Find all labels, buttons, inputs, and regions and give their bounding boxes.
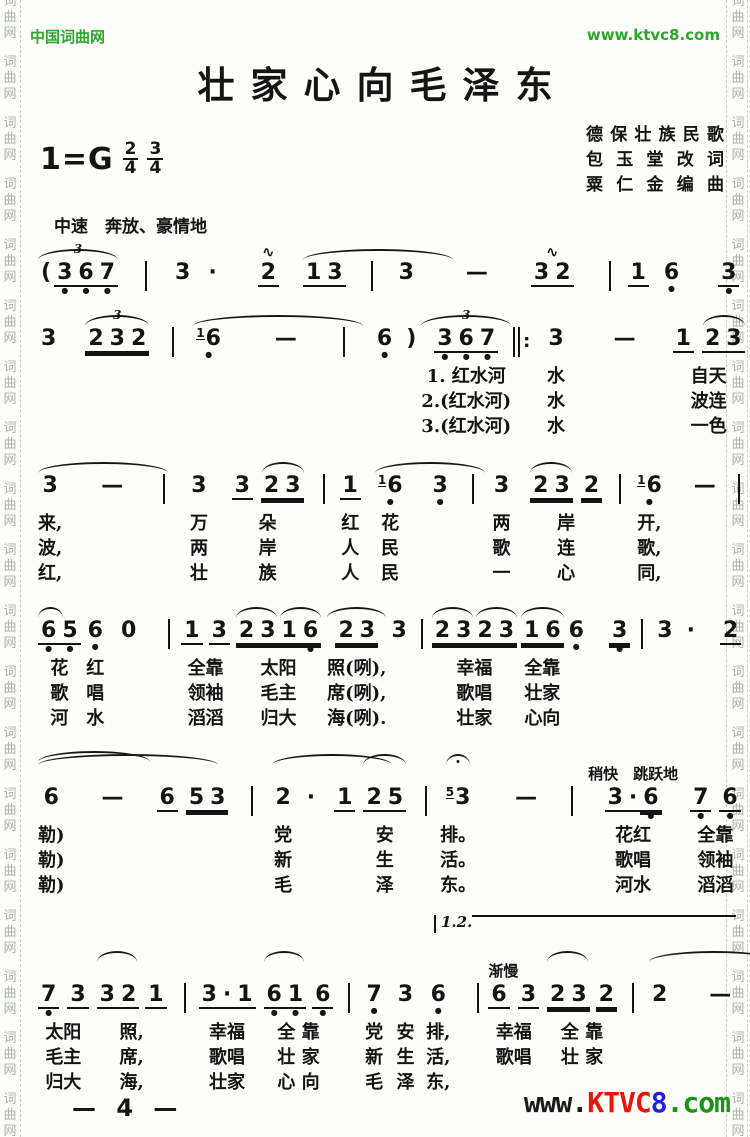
note-token: 1● <box>303 261 324 297</box>
note-token: —● <box>98 474 126 508</box>
empty-mark <box>181 945 189 963</box>
note-token: 1● <box>279 619 300 655</box>
lyric-syllable <box>616 707 622 732</box>
notes-row: 2●3●1●6● <box>236 619 321 657</box>
tempo-annotation <box>649 963 670 983</box>
volta-bracket: 1.2. <box>434 915 736 933</box>
notes-row <box>163 474 165 512</box>
score-column: 3● <box>38 309 59 440</box>
notes-row: 16● <box>193 327 224 365</box>
score-column: 1●6●全靠壮家心向 <box>521 601 564 732</box>
lyric-syllable <box>381 390 387 415</box>
note-token: 3● <box>605 786 626 822</box>
tuplet-number: 3 <box>113 308 121 322</box>
empty-mark <box>320 456 328 474</box>
lyric-syllable <box>470 512 476 537</box>
note-token: 3● <box>434 327 455 363</box>
lyric-syllable <box>736 562 742 587</box>
barline <box>251 786 253 816</box>
score-column: 3●万两壮 <box>188 456 209 587</box>
slur-arc <box>232 456 304 474</box>
empty-mark <box>99 748 127 766</box>
note-token: —● <box>611 327 639 361</box>
left-watermark-column: 词曲网词曲网词曲网词曲网词曲网词曲网词曲网词曲网词曲网词曲网词曲网词曲网词曲网词… <box>1 0 19 1137</box>
lyric-syllable: 党 <box>274 824 292 849</box>
note-token: 2● <box>261 474 282 510</box>
lyric-syllable <box>569 824 575 849</box>
empty-mark <box>568 748 576 766</box>
lyric-syllable: 波连 <box>691 390 727 415</box>
empty-mark <box>142 243 150 261</box>
watermark-char: 网 <box>1 1002 19 1018</box>
lyric-syllable <box>109 874 115 899</box>
notes-row: 2● <box>720 619 741 657</box>
lyric-syllable <box>639 707 645 732</box>
key-signature: 1=G 2434 <box>40 141 163 177</box>
lyric-syllable <box>109 562 115 587</box>
watermark-char: 曲 <box>1 742 19 758</box>
note-token: 2● <box>363 786 384 822</box>
note-token: ·● <box>684 619 698 653</box>
empty-mark <box>98 456 126 474</box>
lyric-syllable <box>346 1071 352 1096</box>
notes-row: 6●3● <box>488 983 539 1021</box>
empty-mark <box>638 601 646 619</box>
note-token: 3● <box>357 619 378 655</box>
note-token: —● <box>706 983 734 1017</box>
empty-mark <box>85 601 106 619</box>
score-column <box>469 456 477 587</box>
lyric-syllable: 席, <box>119 1046 143 1071</box>
slur-arc <box>38 601 81 619</box>
lyric-syllable: 壮家 <box>209 1071 245 1096</box>
notes-row: 2●3●2● <box>547 983 617 1021</box>
notes-row: —● <box>99 786 127 824</box>
barline <box>425 786 427 816</box>
lyric-syllable: 壮 家 <box>561 1046 603 1071</box>
tempo-annotation <box>97 963 167 983</box>
lyric-syllable <box>170 415 176 440</box>
notes-row: 3●·●1● <box>199 983 256 1021</box>
barline <box>343 327 345 357</box>
empty-mark <box>512 748 540 766</box>
lyric-syllable <box>423 824 429 849</box>
lyric-syllable <box>396 682 402 707</box>
lyric-syllable: 水 <box>86 707 104 732</box>
note-token: 3● <box>718 261 739 297</box>
note-token: 6● <box>542 619 563 655</box>
empty-mark <box>165 601 173 619</box>
lyric-syllable <box>46 415 52 440</box>
note-token: 6● <box>719 786 740 822</box>
notes-row: 6● <box>41 786 62 824</box>
lyric-syllable <box>166 657 172 682</box>
slur-arc <box>97 945 167 963</box>
tempo-annotation <box>690 766 741 786</box>
notes-row: 6● <box>85 619 106 657</box>
lyric-syllable <box>617 562 623 587</box>
score-column: ·● <box>205 243 219 299</box>
watermark-char: 网 <box>1 87 19 103</box>
score-column: ∿3●2● <box>531 243 574 299</box>
lyric-syllable: 新 <box>365 1046 383 1071</box>
note-token: ·● <box>205 261 219 295</box>
note-token: 3● <box>107 327 128 363</box>
barline <box>323 474 325 504</box>
barline <box>348 983 350 1013</box>
barline <box>477 983 479 1013</box>
mordent-ornament: ∿ <box>531 243 574 261</box>
logo-segment: 8 <box>651 1086 667 1119</box>
watermark-char: 网 <box>1 26 19 42</box>
lyric-syllable <box>342 849 348 874</box>
lyric-syllable: 2.(红水河) <box>421 390 511 415</box>
watermark-char: 词 <box>1 116 19 132</box>
note-token: 5● <box>186 786 207 822</box>
note-token: 3● <box>396 261 417 295</box>
empty-mark <box>272 309 300 327</box>
note-token: 7● <box>38 983 59 1019</box>
lyric-syllable <box>114 390 120 415</box>
empty-mark <box>430 456 451 474</box>
lyric-syllable <box>617 537 623 562</box>
empty-mark <box>491 456 512 474</box>
ktvc8-logo[interactable]: www.KTVC8.com <box>524 1086 730 1119</box>
lyric-syllable <box>662 707 668 732</box>
lyric-syllable: 活, <box>426 1046 450 1071</box>
note-token: 3● <box>568 983 589 1019</box>
score-column: 3●水水水 <box>545 309 566 440</box>
lyric-syllable <box>717 1046 723 1071</box>
time-signature: 34 <box>147 141 163 177</box>
notes-row: 6● <box>566 619 587 657</box>
lyric-syllable: 歌唱 <box>615 849 651 874</box>
composer-credits: 德保壮族民歌包玉堂改词粟仁金编曲 <box>586 123 724 198</box>
score-column: 2● <box>649 945 670 1096</box>
empty-mark <box>334 748 355 766</box>
barline <box>619 474 621 504</box>
watermark-char: 曲 <box>1 864 19 880</box>
lyric-syllable <box>475 1071 481 1096</box>
score-column: 3●·●1●幸福歌唱壮家 <box>199 945 256 1096</box>
tempo-annotation <box>181 963 189 983</box>
notes-row: 2●3●2● <box>530 474 602 512</box>
lyric-syllable: 水 <box>547 415 565 440</box>
note-token: 1● <box>334 786 355 822</box>
lyric-syllable <box>630 1046 636 1071</box>
note-token: 2● <box>702 327 723 363</box>
slur-arc <box>303 243 346 261</box>
notes-row: 6●5●3● <box>157 786 229 824</box>
lyric-syllable: 心 向 <box>277 1071 319 1096</box>
notes-row: 1●2●3● <box>673 327 745 365</box>
empty-mark <box>368 243 376 261</box>
note-token: 1● <box>521 619 542 655</box>
barline <box>371 261 373 291</box>
lyric-syllable <box>114 365 120 390</box>
note-token: (● <box>38 261 54 295</box>
score-column <box>169 309 177 440</box>
lyric-syllable <box>181 1046 187 1071</box>
note-token: 1● <box>285 983 306 1019</box>
lyric-syllable <box>109 849 115 874</box>
notes-row: 3●2●3● <box>232 474 304 512</box>
lyric-syllable <box>437 537 443 562</box>
score-column: :● <box>513 309 533 440</box>
score-column: 稍快 跳跃地3●·●6●花红歌唱河水 <box>588 748 678 899</box>
empty-mark <box>469 456 477 474</box>
notes-row: —● <box>98 474 126 512</box>
watermark-char: 网 <box>1 758 19 774</box>
notes-row <box>168 619 170 657</box>
watermark-char: 词 <box>729 55 747 71</box>
score-column <box>165 601 173 732</box>
tempo-annotation: 渐慢 <box>488 963 539 983</box>
slur-arcs <box>236 601 321 619</box>
lyric-syllable: 红 <box>86 657 104 682</box>
key-and-credits-row: 1=G 2434 德保壮族民歌包玉堂改词粟仁金编曲 <box>40 123 724 198</box>
note-token: 3● <box>38 327 59 361</box>
grace-note: 1 <box>378 475 386 487</box>
lyric-syllable: 滔滔 <box>188 707 224 732</box>
lyric-syllable <box>205 390 211 415</box>
lyric-syllable: 泽 <box>376 874 394 899</box>
empty-mark <box>691 456 719 474</box>
note-token: :● <box>520 327 533 361</box>
note-token: 6● <box>312 983 333 1019</box>
notes-row <box>609 261 611 299</box>
empty-mark <box>422 748 430 766</box>
score-column: 3● <box>172 243 193 299</box>
watermark-char: 词 <box>1 0 19 10</box>
note-token: 2● <box>596 983 617 1019</box>
notes-row: 3● <box>39 474 60 512</box>
tempo-annotation <box>272 766 293 786</box>
lyric-syllable <box>622 365 628 390</box>
note-token: 7● <box>363 983 384 1017</box>
site-name-link[interactable]: 中国词曲网 <box>30 26 105 47</box>
notes-row: 1● <box>628 261 649 299</box>
lyric-syllable <box>249 874 255 899</box>
notes-row <box>632 983 634 1021</box>
note-token: 6● <box>85 619 106 653</box>
note-token: 1● <box>145 983 166 1019</box>
notes-row: 2●3●2●3● <box>432 619 517 657</box>
score-column: 7●党新毛 <box>363 945 384 1096</box>
watermark-char: 曲 <box>1 193 19 209</box>
note-token: —● <box>691 474 719 508</box>
empty-mark <box>340 456 361 474</box>
lyric-syllable <box>727 657 733 682</box>
notes-row: (●3●6●7● <box>38 261 118 299</box>
lyric-syllable <box>573 657 579 682</box>
lyric-syllable: 全靠 <box>188 657 224 682</box>
score-column: 2●党新毛 <box>272 748 293 899</box>
empty-mark <box>38 309 59 327</box>
score-column: 6●勒)勒)勒) <box>38 748 65 899</box>
notes-row: 3● <box>718 261 739 299</box>
lyric-syllable <box>205 365 211 390</box>
watermark-char: 词 <box>1 1092 19 1108</box>
notes-row: 1●3● <box>303 261 346 299</box>
lyric-syllable: 东, <box>426 1071 450 1096</box>
empty-mark <box>304 748 318 766</box>
lyric-syllable <box>419 682 425 707</box>
tempo-annotation <box>38 963 89 983</box>
watermark-char: 曲 <box>1 1047 19 1063</box>
note-token: 7● <box>690 786 711 822</box>
lyric-syllable: 勒) <box>38 849 65 874</box>
sheet-music-page: 词曲网词曲网词曲网词曲网词曲网词曲网词曲网词曲网词曲网词曲网词曲网词曲网词曲网词… <box>0 0 750 1137</box>
notes-row: 2● <box>272 786 293 824</box>
lyric-syllable <box>688 707 694 732</box>
watermark-char: 曲 <box>1 132 19 148</box>
watermark-char: 网 <box>729 26 747 42</box>
note-token: 6● <box>264 983 285 1019</box>
lyric-syllable <box>346 1021 352 1046</box>
watermark-char: 曲 <box>1 559 19 575</box>
notes-row: ·● <box>205 261 219 299</box>
notes-row: 3● <box>491 474 512 512</box>
watermark-char: 网 <box>1 941 19 957</box>
empty-mark <box>160 456 168 474</box>
barline <box>738 474 740 504</box>
notes-row <box>145 261 147 299</box>
note-token: 3● <box>209 619 230 655</box>
lyric-syllable <box>437 562 443 587</box>
time-signatures: 2434 <box>114 141 164 177</box>
tempo-annotation <box>199 963 256 983</box>
lyric-syllable <box>283 415 289 440</box>
lyric-syllable: 席(咧), <box>327 682 386 707</box>
watermark-char: 曲 <box>1 315 19 331</box>
notes-row: 3● <box>396 261 417 299</box>
lyric-syllable <box>161 562 167 587</box>
note-token: 2● <box>258 261 279 297</box>
score-column: 3● <box>388 601 409 732</box>
note-token: 0● <box>118 619 139 653</box>
notes-row: 16● <box>375 474 406 512</box>
score-column: 6●5●3● <box>157 748 229 899</box>
note-token: 6● <box>374 327 395 361</box>
lyric-syllable: 生 <box>376 849 394 874</box>
dashed-rule-right-outer <box>747 0 748 1137</box>
notes-row <box>343 327 345 365</box>
score-column: 6● <box>566 601 587 732</box>
lyric-syllable: 归大 <box>45 1071 81 1096</box>
lyric-syllable: 花 <box>50 657 68 682</box>
score-column: —● <box>272 309 300 440</box>
lyric-syllable <box>475 1021 481 1046</box>
lyric-syllable: 照(咧), <box>327 657 386 682</box>
lyric-syllable <box>702 537 708 562</box>
lyric-syllable <box>125 707 131 732</box>
lyric-syllable <box>437 512 443 537</box>
note-token: 3● <box>199 983 220 1019</box>
watermark-char: 网 <box>1 1124 19 1137</box>
watermark-char: 词 <box>1 482 19 498</box>
notes-row: 1● <box>340 474 361 512</box>
tempo-annotation <box>248 766 256 786</box>
lyric-syllable: 泽 <box>396 1071 414 1096</box>
lyric-syllable <box>283 365 289 390</box>
lyric-syllable <box>381 365 387 390</box>
watermark-char: 网 <box>1 392 19 408</box>
lyric-syllable <box>46 365 52 390</box>
lyric-syllable <box>573 682 579 707</box>
nested-slur-arc <box>38 748 65 766</box>
lyric-syllable: 毛 <box>274 874 292 899</box>
volta-label: 1.2. <box>436 913 472 931</box>
lyric-syllable: 岸 <box>259 537 277 562</box>
site-url-link[interactable]: www.ktvc8.com <box>587 26 720 47</box>
barline <box>472 474 474 504</box>
notes-row: 16● <box>634 474 665 512</box>
lyric-syllable: 两 <box>492 512 510 537</box>
lyric-syllable: 歌 <box>50 682 68 707</box>
empty-mark <box>545 309 566 327</box>
empty-mark <box>616 456 624 474</box>
tempo-annotation <box>440 766 476 786</box>
lyric-syllable: 领袖 <box>188 682 224 707</box>
lyric-syllable <box>419 657 425 682</box>
lyric-syllable: 毛主 <box>45 1046 81 1071</box>
lyric-syllable <box>573 707 579 732</box>
lyric-syllable: 3.(红水河) <box>421 415 511 440</box>
lyric-syllable <box>170 390 176 415</box>
tempo-annotation <box>334 766 355 786</box>
lyric-syllable <box>470 562 476 587</box>
music-system-4: 6●5●花歌河6●红唱水0● 1●3●全靠领袖滔滔2●3●1●6●太阳毛主归大2… <box>38 601 716 732</box>
lyric-syllable: 连 <box>557 537 575 562</box>
notes-row <box>738 474 740 512</box>
lyric-syllable: 安 <box>376 824 394 849</box>
barline <box>421 619 423 649</box>
score-column <box>142 243 150 299</box>
score-column: 3●来,波,红, <box>38 456 62 587</box>
tempo-annotation <box>363 766 406 786</box>
score-column: 6●排,活,东, <box>426 945 450 1096</box>
notes-row: 3●2●1● <box>97 983 167 1021</box>
tempo-annotation <box>395 963 416 983</box>
watermark-char: 曲 <box>729 10 747 26</box>
watermark-char: 曲 <box>1 254 19 270</box>
barline <box>641 619 643 649</box>
watermark-char: 网 <box>1 514 19 530</box>
lyric-syllable: 心 <box>557 562 575 587</box>
empty-mark <box>474 945 482 963</box>
lyric-syllable <box>630 1021 636 1046</box>
notes-row: 3● <box>430 474 451 512</box>
notes-row <box>172 327 174 365</box>
music-system-5: 6●勒)勒)勒)—● 6●5●3● 2●党新毛·● 1● 2●5●安生泽 53●… <box>38 748 716 899</box>
slur-arcs <box>432 601 517 619</box>
empty-mark <box>388 601 409 619</box>
score-column: —● <box>98 456 126 587</box>
score-column: —● <box>512 748 540 899</box>
lyric-syllable <box>341 415 347 440</box>
watermark-char: 词 <box>729 116 747 132</box>
empty-mark <box>426 945 450 963</box>
empty-mark <box>157 748 229 766</box>
tempo-annotation <box>304 766 318 786</box>
watermark-char: 词 <box>1 848 19 864</box>
score-column <box>638 601 646 732</box>
lyric-syllable: 人 <box>341 562 359 587</box>
note-token: 6● <box>661 261 682 295</box>
score-column: 渐慢6●3●幸福歌唱 <box>488 945 539 1096</box>
empty-mark <box>588 748 678 766</box>
